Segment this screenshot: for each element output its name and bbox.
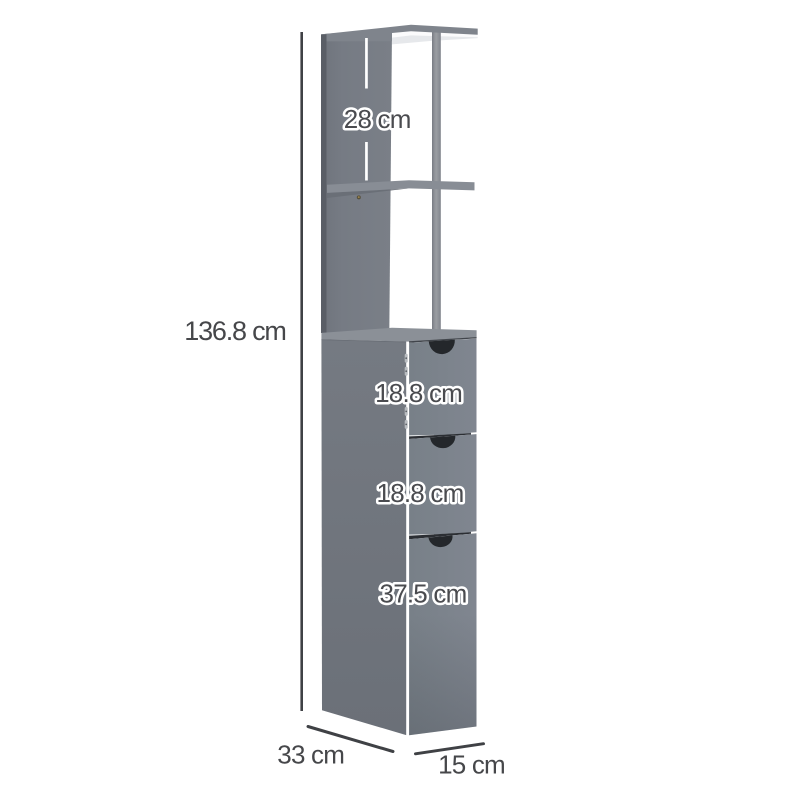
svg-text:37.5 cm: 37.5 cm: [380, 578, 467, 608]
svg-text:18.8 cm: 18.8 cm: [377, 478, 464, 508]
svg-text:136.8 cm: 136.8 cm: [184, 316, 285, 346]
svg-text:18.8 cm: 18.8 cm: [375, 378, 462, 408]
svg-text:33 cm: 33 cm: [277, 739, 344, 769]
svg-text:28 cm: 28 cm: [344, 104, 411, 134]
svg-text:15 cm: 15 cm: [438, 750, 505, 780]
